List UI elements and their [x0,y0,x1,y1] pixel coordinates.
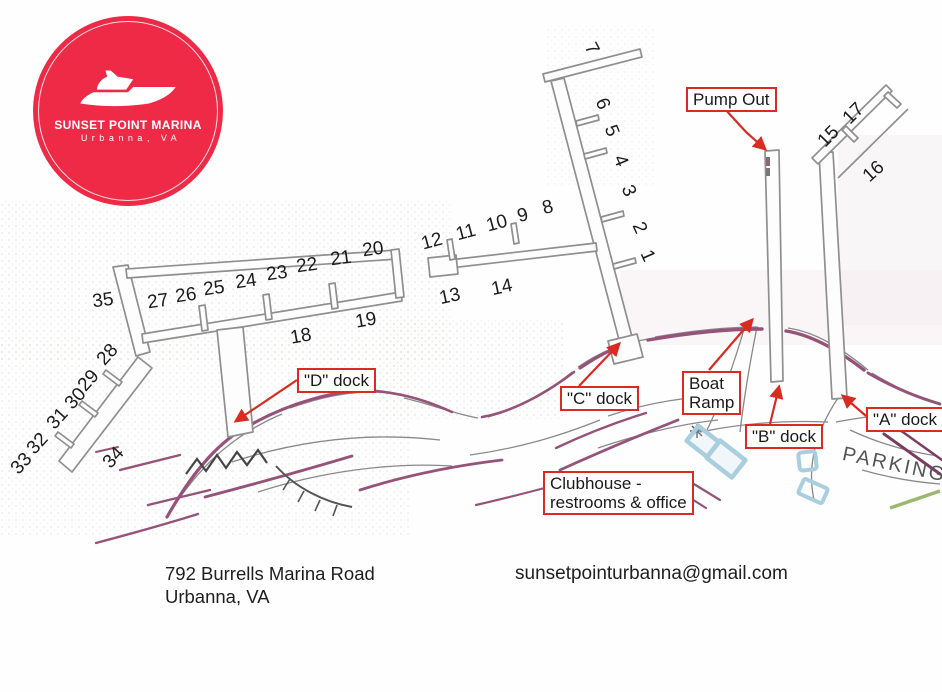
slip-number-21: 21 [329,247,353,272]
small-building [798,451,817,471]
slip-number-22: 22 [295,254,319,279]
b-dock-pier [765,150,783,382]
address: 792 Burrells Marina Road Urbanna, VA [165,562,375,608]
slip-number-19: 19 [354,308,379,333]
logo-ring [38,21,218,201]
slip-number-14: 14 [489,275,514,301]
address-line2: Urbanna, VA [165,585,375,608]
marina-logo: SUNSET POINT MARINA Urbanna, VA [33,16,223,206]
c-dock-label: "C" dock [560,386,639,411]
a-dock-label: "A" dock [866,407,942,432]
boat-ramp-label: Boat Ramp [682,371,741,415]
slip-number-27: 27 [146,290,170,315]
email-text: sunsetpointurbanna@gmail.com [515,563,788,585]
logo-subtitle: Urbanna, VA [39,133,223,143]
pump-out-arrow [724,108,765,149]
address-line1: 792 Burrells Marina Road [165,562,375,585]
clubhouse-label: Clubhouse - restrooms & office [543,471,694,515]
boat-icon [76,64,180,110]
d-dock-label: "D" dock [297,368,376,393]
boat-ramp-line2: Ramp [689,393,734,412]
slip-number-13: 13 [437,284,462,310]
slip-number-23: 23 [265,262,289,287]
slip-number-24: 24 [234,270,258,295]
a-dock-arrow [843,396,866,416]
slip-number-25: 25 [202,277,226,302]
clubhouse-line1: Clubhouse - [550,474,687,493]
b-dock-label: "B" dock [745,424,823,449]
slip-number-18: 18 [289,324,314,349]
logo-title: SUNSET POINT MARINA [33,118,223,132]
clubhouse-building [687,426,746,478]
clubhouse-line2: restrooms & office [550,493,687,512]
pump-out-label: Pump Out [686,87,777,112]
marina-flyer: SUNSET POINT MARINA Urbanna, VA 76543218… [0,0,942,692]
b-dock-arrow [770,387,779,424]
slip-number-20: 20 [361,238,385,263]
boat-ramp-line1: Boat [689,374,734,393]
slip-number-35: 35 [91,289,115,314]
slip-number-26: 26 [174,284,198,309]
grass-line [890,491,940,508]
